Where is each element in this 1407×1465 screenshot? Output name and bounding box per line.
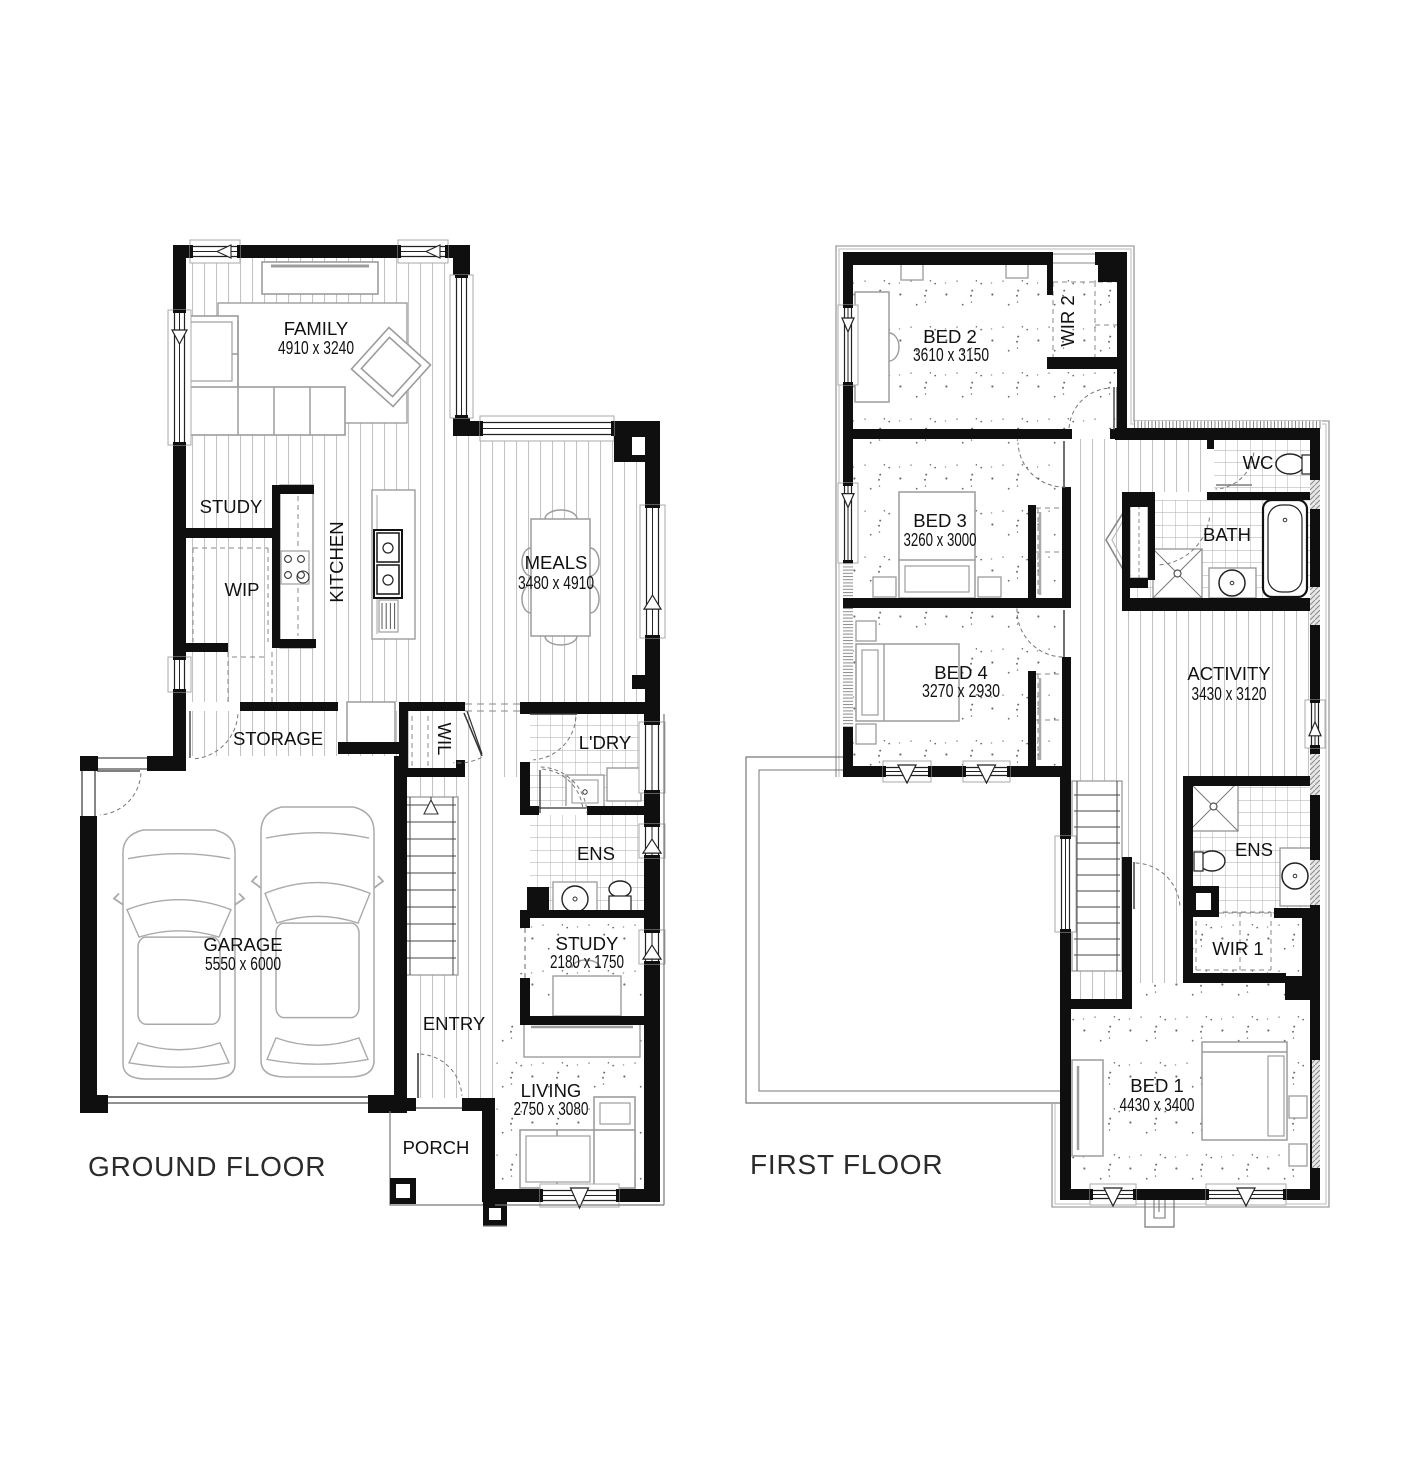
svg-text:4430 x 3400: 4430 x 3400 bbox=[1120, 1094, 1195, 1115]
svg-text:WC: WC bbox=[1243, 452, 1274, 473]
svg-text:FIRST FLOOR: FIRST FLOOR bbox=[750, 1149, 943, 1180]
svg-text:ENS: ENS bbox=[577, 843, 615, 864]
svg-text:WIR 1: WIR 1 bbox=[1212, 938, 1263, 959]
svg-text:ACTIVITY: ACTIVITY bbox=[1187, 663, 1270, 684]
svg-text:3480 x 4910: 3480 x 4910 bbox=[518, 572, 594, 593]
svg-text:WIL: WIL bbox=[434, 723, 455, 756]
svg-text:FAMILY: FAMILY bbox=[284, 318, 348, 339]
svg-text:MEALS: MEALS bbox=[525, 552, 588, 573]
svg-text:L'DRY: L'DRY bbox=[579, 732, 632, 753]
svg-text:STUDY: STUDY bbox=[200, 496, 263, 517]
svg-text:2180 x 1750: 2180 x 1750 bbox=[550, 951, 624, 972]
svg-text:BED 3: BED 3 bbox=[913, 510, 966, 531]
svg-text:KITCHEN: KITCHEN bbox=[326, 521, 347, 602]
svg-text:WIP: WIP bbox=[225, 579, 260, 600]
svg-text:3260 x 3000: 3260 x 3000 bbox=[904, 529, 977, 550]
svg-text:3430 x 3120: 3430 x 3120 bbox=[1192, 683, 1267, 704]
svg-text:STORAGE: STORAGE bbox=[233, 728, 323, 749]
svg-text:5550 x 6000: 5550 x 6000 bbox=[205, 953, 281, 974]
svg-text:3270 x 2930: 3270 x 2930 bbox=[922, 680, 1000, 701]
svg-text:ENS: ENS bbox=[1235, 839, 1273, 860]
svg-text:WIR 2: WIR 2 bbox=[1057, 295, 1078, 346]
svg-text:GARAGE: GARAGE bbox=[203, 934, 282, 955]
svg-text:BED 1: BED 1 bbox=[1130, 1075, 1183, 1096]
svg-text:PORCH: PORCH bbox=[403, 1137, 470, 1158]
svg-text:3610 x 3150: 3610 x 3150 bbox=[913, 344, 989, 365]
svg-text:2750 x 3080: 2750 x 3080 bbox=[514, 1098, 589, 1119]
svg-text:BATH: BATH bbox=[1203, 524, 1251, 545]
svg-text:ENTRY: ENTRY bbox=[423, 1013, 485, 1034]
svg-text:4910 x 3240: 4910 x 3240 bbox=[278, 337, 354, 358]
svg-text:GROUND FLOOR: GROUND FLOOR bbox=[88, 1151, 326, 1182]
